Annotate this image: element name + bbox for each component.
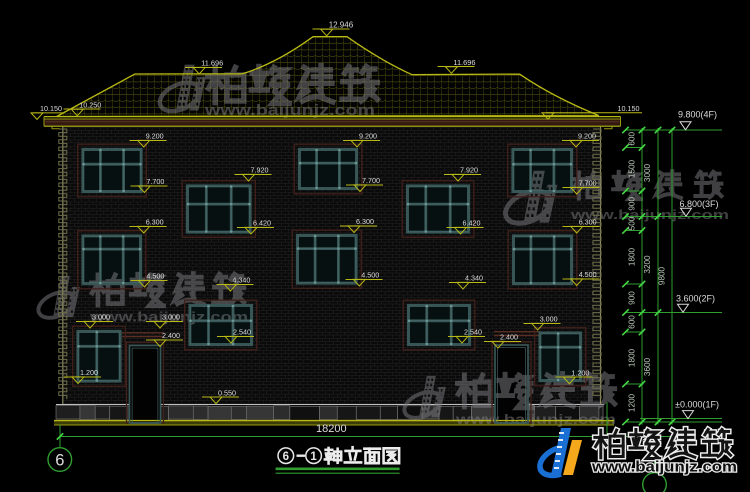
svg-text:1.200: 1.200 [571,368,589,377]
svg-text:10.250: 10.250 [79,101,101,110]
svg-text:7.920: 7.920 [460,166,478,175]
svg-text:0.550: 0.550 [218,388,236,397]
svg-text:2.400: 2.400 [162,331,180,340]
svg-text:12.946: 12.946 [329,21,354,30]
svg-text:10.150: 10.150 [618,104,640,113]
svg-text:9800: 9800 [658,266,667,285]
svg-text:10.150: 10.150 [40,104,62,113]
svg-text:9.200: 9.200 [359,132,377,141]
svg-text:900: 900 [628,197,637,211]
svg-text:3200: 3200 [643,255,652,274]
svg-text:4.340: 4.340 [232,276,250,285]
svg-text:600: 600 [628,132,637,146]
svg-text:6.300: 6.300 [356,217,374,226]
svg-text:3.600(2F): 3.600(2F) [676,293,715,303]
svg-text:3.000: 3.000 [540,315,558,324]
svg-text:±0.000(1F): ±0.000(1F) [675,400,719,410]
svg-text:6.300: 6.300 [146,218,164,227]
svg-text:6: 6 [283,451,289,463]
svg-text:9.200: 9.200 [146,132,164,141]
svg-text:2.540: 2.540 [464,328,482,337]
svg-text:4.340: 4.340 [465,274,483,283]
svg-text:7.700: 7.700 [146,177,164,186]
svg-text:1.200: 1.200 [80,368,98,377]
svg-text:9.800(4F): 9.800(4F) [678,110,717,120]
svg-text:4.500: 4.500 [361,271,379,280]
svg-text:2.400: 2.400 [500,333,518,342]
svg-text:18200: 18200 [316,423,347,435]
svg-text:3.000: 3.000 [162,313,180,322]
svg-text:7.920: 7.920 [251,166,269,175]
svg-text:3000: 3000 [643,163,652,182]
svg-text:11.696: 11.696 [201,59,223,68]
svg-text:1: 1 [310,451,317,463]
svg-text:7.700: 7.700 [362,176,380,185]
svg-text:6.420: 6.420 [253,219,271,228]
svg-text:900: 900 [628,291,637,305]
svg-text:3600: 3600 [643,357,652,376]
svg-text:6.420: 6.420 [463,219,481,228]
svg-text:1500: 1500 [628,159,637,178]
svg-text:9.200: 9.200 [578,132,596,141]
svg-text:3.000: 3.000 [92,313,110,322]
svg-text:2.540: 2.540 [233,328,251,337]
svg-text:6.300: 6.300 [579,218,597,227]
svg-text:4.500: 4.500 [579,270,597,279]
svg-text:6: 6 [55,452,64,470]
svg-text:www.baijunjz.com: www.baijunjz.com [591,459,737,476]
svg-text:1800: 1800 [628,348,637,367]
svg-text:4.500: 4.500 [146,272,164,281]
svg-text:500: 500 [628,216,637,230]
svg-text:6.800(3F): 6.800(3F) [680,199,719,209]
svg-text:600: 600 [628,315,637,329]
svg-text:1200: 1200 [628,393,637,412]
svg-text:7.700: 7.700 [579,179,597,188]
svg-text:11.696: 11.696 [453,58,475,67]
svg-text:1800: 1800 [628,247,637,266]
